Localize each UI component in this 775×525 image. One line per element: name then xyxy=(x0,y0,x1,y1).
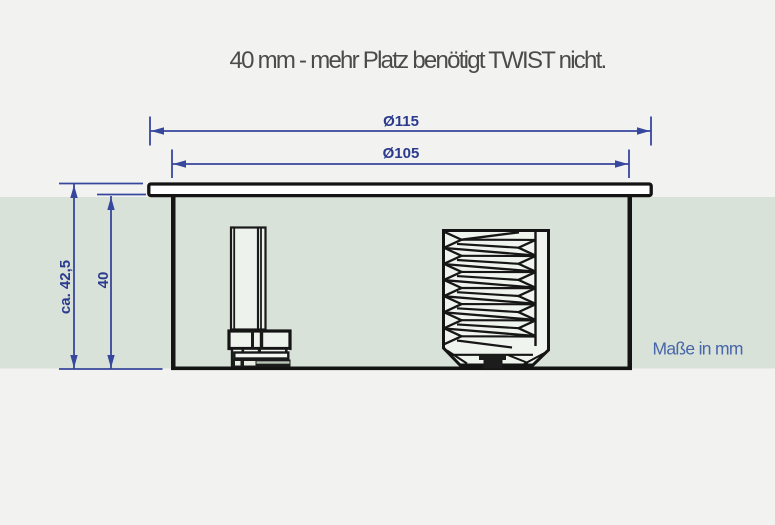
svg-text:Maße in mm: Maße in mm xyxy=(653,339,743,359)
svg-text:40 mm - mehr Platz benötigt TW: 40 mm - mehr Platz benötigt TWIST nicht. xyxy=(230,47,606,74)
svg-text:40: 40 xyxy=(95,272,112,289)
svg-text:Ø105: Ø105 xyxy=(383,145,420,162)
svg-text:ca. 42,5: ca. 42,5 xyxy=(57,260,74,314)
svg-text:Ø115: Ø115 xyxy=(383,113,419,130)
